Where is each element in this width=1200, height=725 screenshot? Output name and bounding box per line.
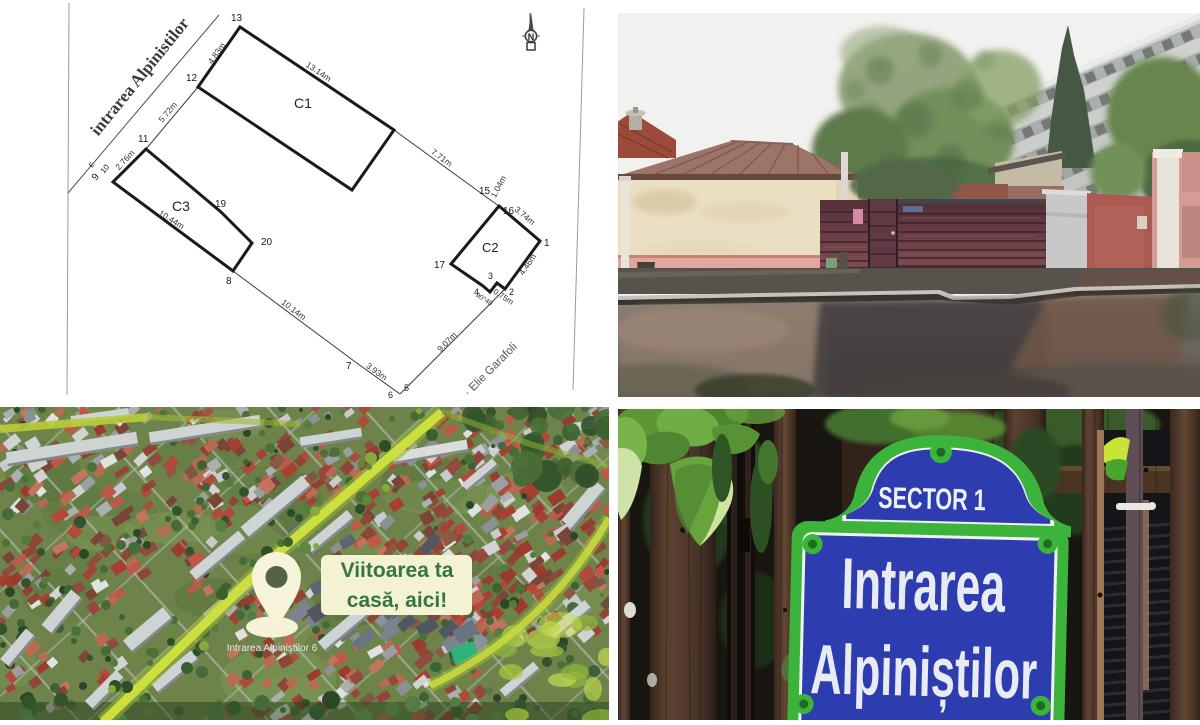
svg-text:1: 1: [544, 238, 550, 249]
svg-text:casă, aici!: casă, aici!: [347, 589, 447, 612]
svg-text:11: 11: [138, 134, 149, 145]
svg-text:C2: C2: [482, 240, 499, 255]
svg-text:7: 7: [346, 361, 352, 372]
svg-text:10.14m: 10.14m: [279, 297, 308, 322]
svg-text:9: 9: [90, 171, 102, 183]
svg-text:C1: C1: [294, 95, 312, 111]
svg-text:· Elie Garafoli: · Elie Garafoli: [462, 341, 520, 399]
svg-text:17: 17: [434, 260, 446, 271]
svg-text:Intrarea: Intrarea: [841, 543, 1007, 628]
svg-text:10: 10: [99, 162, 112, 175]
svg-text:3: 3: [488, 271, 493, 281]
svg-text:N: N: [528, 32, 535, 42]
svg-text:intrarea Alpinistilor: intrarea Alpinistilor: [87, 14, 194, 139]
svg-text:3.74m: 3.74m: [513, 204, 538, 227]
svg-text:4.46m: 4.46m: [517, 252, 539, 277]
svg-text:5.72m: 5.72m: [156, 100, 179, 125]
svg-text:19: 19: [215, 199, 227, 210]
svg-text:13: 13: [231, 13, 243, 24]
svg-text:Viitoarea ta: Viitoarea ta: [341, 559, 454, 582]
svg-text:20: 20: [261, 237, 273, 248]
svg-text:90°40: 90°40: [474, 291, 494, 308]
svg-text:SECTOR 1: SECTOR 1: [878, 480, 986, 517]
svg-text:6: 6: [388, 390, 393, 400]
svg-text:9.07m: 9.07m: [435, 330, 459, 354]
svg-text:1.04m: 1.04m: [488, 174, 508, 200]
svg-text:C3: C3: [172, 198, 190, 214]
svg-text:Intrarea Alpiniștilor 6: Intrarea Alpiniștilor 6: [227, 643, 318, 654]
svg-text:5: 5: [404, 383, 409, 393]
svg-text:8: 8: [226, 276, 232, 287]
svg-text:Alpiniștilor: Alpiniștilor: [810, 631, 1038, 716]
svg-text:12: 12: [186, 73, 198, 84]
